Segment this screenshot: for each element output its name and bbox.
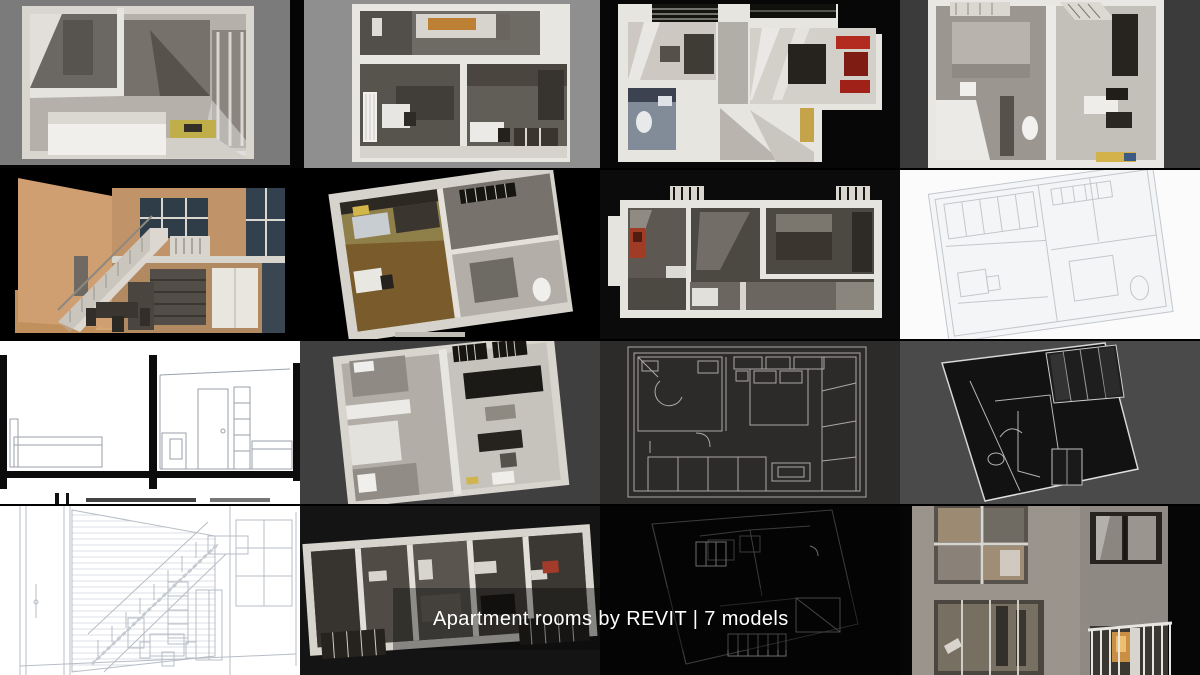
tile-section-drawing (0, 341, 300, 504)
tile-render-isometric-one-bed (300, 341, 600, 504)
tile-lineart-loft-interior (0, 506, 300, 675)
tile-render-building-facade (900, 506, 1200, 675)
tile-render-top-view-two-rooms (900, 0, 1200, 168)
thumbnail-collage: Apartment rooms by REVIT | 7 models (0, 0, 1200, 675)
tile-render-top-view-one-bed (300, 0, 600, 168)
tile-render-top-view-red-sofa (600, 0, 900, 168)
tile-render-isometric-olive (300, 170, 600, 339)
tile-render-top-view-wide (600, 170, 900, 339)
tile-render-loft-interior (0, 170, 300, 339)
caption-text: Apartment rooms by REVIT | 7 models (433, 606, 953, 636)
tile-wireframe-dark-isometric (900, 341, 1200, 504)
tile-wireframe-dark-top-view (600, 341, 900, 504)
tile-wireframe-white-isometric (900, 170, 1200, 339)
tile-render-top-view-studio (0, 0, 300, 168)
